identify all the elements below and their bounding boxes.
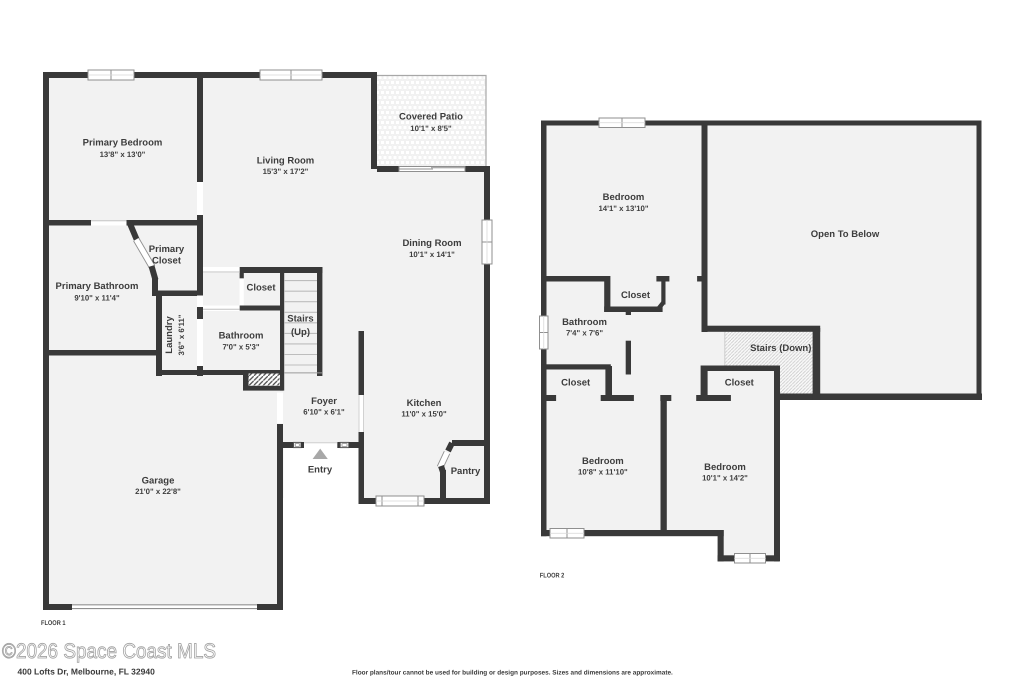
svg-text:6'10" x 6'1": 6'10" x 6'1" <box>303 408 345 417</box>
svg-text:Closet: Closet <box>725 378 755 389</box>
svg-text:21'0" x 22'8": 21'0" x 22'8" <box>135 487 181 496</box>
svg-text:Bedroom: Bedroom <box>603 192 645 203</box>
svg-text:Pantry: Pantry <box>451 466 481 477</box>
svg-text:7'4" x 7'6": 7'4" x 7'6" <box>566 329 603 338</box>
svg-text:Laundry: Laundry <box>164 316 175 354</box>
svg-text:©2026 Space Coast MLS: ©2026 Space Coast MLS <box>2 640 216 663</box>
svg-text:Foyer: Foyer <box>311 396 337 407</box>
svg-text:Bedroom: Bedroom <box>582 456 624 467</box>
svg-text:Primary: Primary <box>149 244 185 255</box>
svg-text:Garage: Garage <box>142 476 175 487</box>
svg-text:Primary Bathroom: Primary Bathroom <box>56 281 139 292</box>
svg-text:Closet: Closet <box>246 283 276 294</box>
svg-text:Bathroom: Bathroom <box>219 331 264 342</box>
svg-text:(Up): (Up) <box>291 327 310 338</box>
svg-text:10'1" x 8'5": 10'1" x 8'5" <box>410 124 452 133</box>
svg-text:Closet: Closet <box>152 256 182 267</box>
svg-text:Bathroom: Bathroom <box>562 317 607 328</box>
svg-text:Closet: Closet <box>561 378 591 389</box>
svg-text:14'1" x 13'10": 14'1" x 13'10" <box>598 204 648 213</box>
svg-text:9'10" x 11'4": 9'10" x 11'4" <box>74 294 120 303</box>
svg-text:Floor plans/tour cannot be use: Floor plans/tour cannot be used for buil… <box>352 670 673 677</box>
svg-text:Bedroom: Bedroom <box>704 462 746 473</box>
svg-text:11'0" x 15'0": 11'0" x 15'0" <box>401 410 447 419</box>
svg-text:Entry: Entry <box>308 465 333 476</box>
svg-text:10'8" x 11'10": 10'8" x 11'10" <box>578 468 628 477</box>
svg-text:400 Lofts Dr, Melbourne, FL 32: 400 Lofts Dr, Melbourne, FL 32940 <box>18 667 156 677</box>
svg-text:Closet: Closet <box>621 290 651 301</box>
svg-text:7'0" x 5'3": 7'0" x 5'3" <box>222 343 259 352</box>
svg-text:15'3" x 17'2": 15'3" x 17'2" <box>263 167 309 176</box>
svg-text:Open To Below: Open To Below <box>811 229 880 240</box>
svg-text:Covered Patio: Covered Patio <box>399 112 463 123</box>
svg-text:FLOOR 1: FLOOR 1 <box>41 620 66 627</box>
svg-text:Primary Bedroom: Primary Bedroom <box>83 138 163 149</box>
svg-text:Kitchen: Kitchen <box>407 398 442 409</box>
svg-text:10'1" x 14'1": 10'1" x 14'1" <box>409 250 455 259</box>
svg-text:10'1" x 14'2": 10'1" x 14'2" <box>702 474 748 483</box>
svg-text:Stairs (Down): Stairs (Down) <box>750 343 811 354</box>
svg-text:Stairs: Stairs <box>287 314 313 325</box>
svg-text:13'8" x 13'0": 13'8" x 13'0" <box>100 150 146 159</box>
svg-text:Living Room: Living Room <box>257 156 315 167</box>
svg-text:FLOOR 2: FLOOR 2 <box>540 573 565 580</box>
svg-text:Dining Room: Dining Room <box>402 238 461 249</box>
svg-text:3'6" x 6'11": 3'6" x 6'11" <box>177 314 186 355</box>
